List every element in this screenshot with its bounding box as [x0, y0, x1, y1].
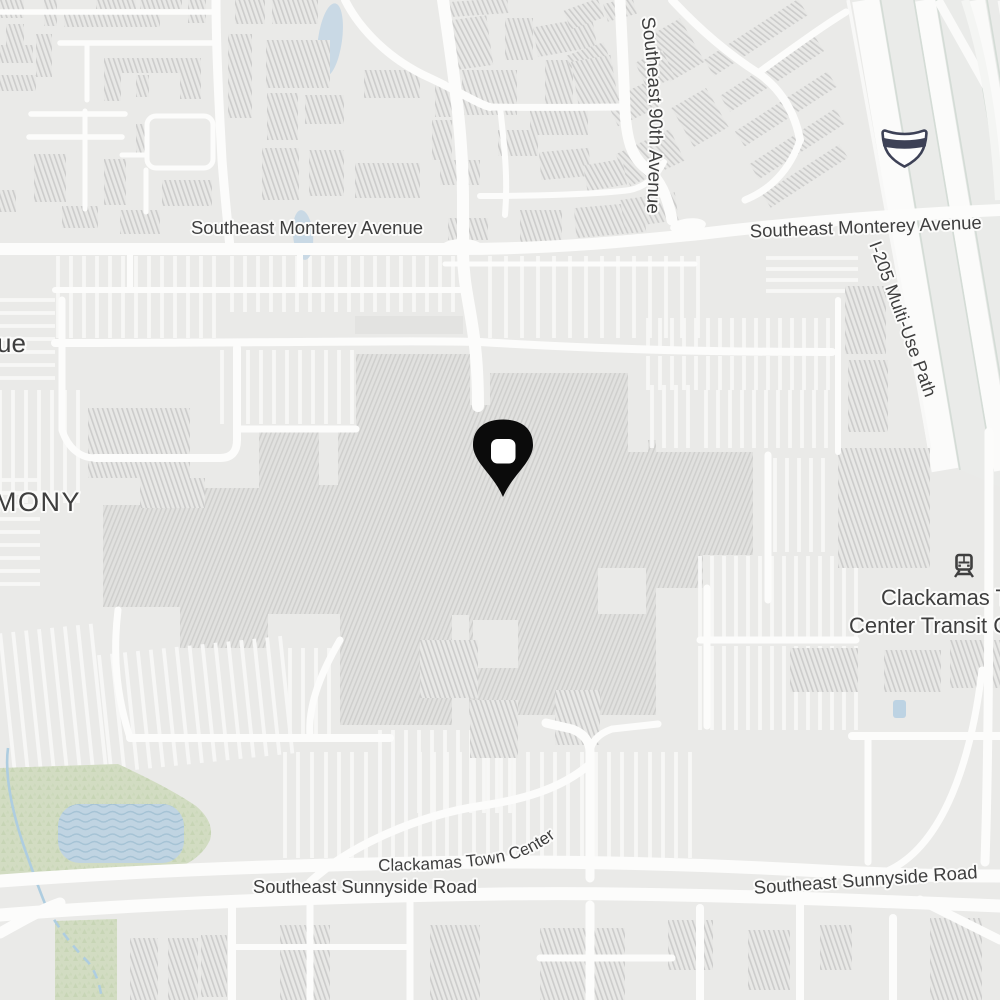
svg-text:MONY: MONY	[0, 487, 81, 517]
svg-text:Clackamas To: Clackamas To	[881, 585, 1000, 610]
svg-text:Southeast Monterey Avenue: Southeast Monterey Avenue	[191, 217, 423, 238]
svg-text:Center Transit C: Center Transit C	[849, 613, 1000, 638]
svg-text:ue: ue	[0, 328, 26, 358]
svg-text:Southeast Sunnyside Road: Southeast Sunnyside Road	[253, 876, 477, 897]
